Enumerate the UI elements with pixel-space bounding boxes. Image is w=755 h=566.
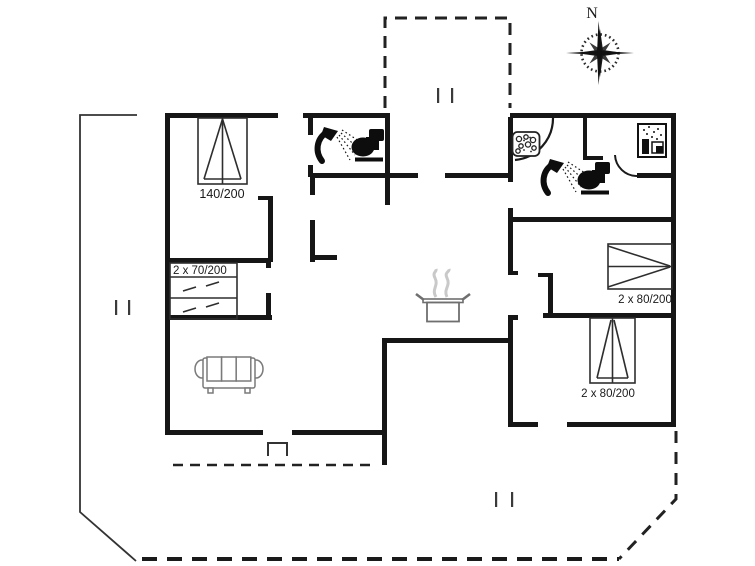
- terrace-step-icon: [268, 443, 287, 456]
- washbasin-icon: [513, 132, 540, 156]
- bed-80-south-label: 2 x 80/200: [581, 388, 635, 400]
- bunk-70-label: 2 x 70/200: [173, 265, 227, 277]
- toilet-icon-2: [578, 162, 611, 195]
- floor-plan-svg: 140/200 2 x 70/200 2 x 80/200 2 x 80/200: [0, 0, 755, 566]
- floor-plan-canvas: 140/200 2 x 70/200 2 x 80/200 2 x 80/200: [0, 0, 755, 566]
- terrace-outline: [80, 115, 137, 561]
- bed-double-80-east: [608, 244, 672, 289]
- bed-double-140: [198, 118, 247, 184]
- terrace-dashed-right: [619, 431, 676, 559]
- toilet-icon-1: [352, 129, 385, 162]
- bed-140-label: 140/200: [199, 187, 244, 201]
- cooking-pot-icon: [416, 269, 470, 322]
- bed-double-80-south: [590, 318, 635, 383]
- porch-dashed-outline: [385, 18, 510, 108]
- sofa-icon: [195, 357, 263, 393]
- compass-rose-icon: N: [566, 5, 634, 85]
- bed-80-east-label: 2 x 80/200: [618, 294, 672, 306]
- washing-machine-icon: [638, 124, 666, 157]
- door-arc-utility: [615, 155, 637, 176]
- compass-north-label: N: [586, 5, 598, 22]
